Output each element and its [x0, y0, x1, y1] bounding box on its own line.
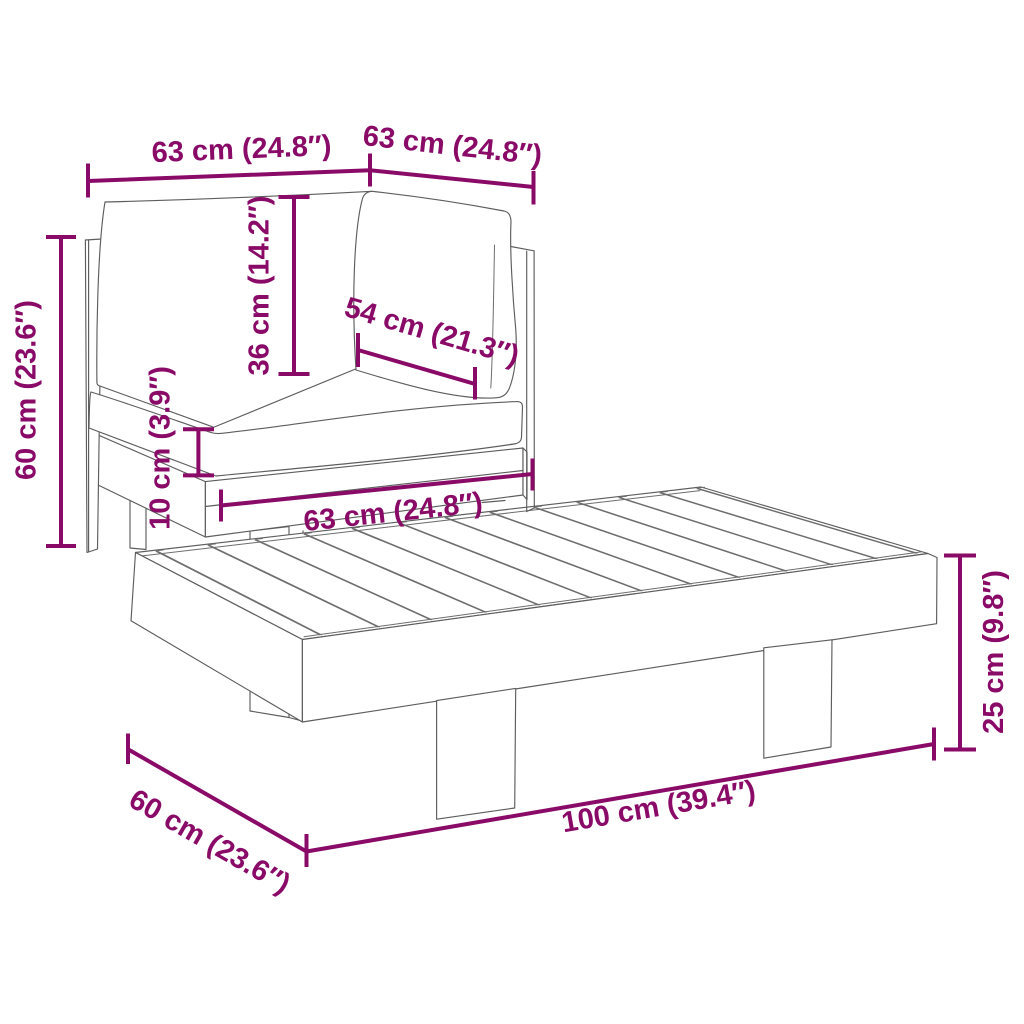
svg-text:10 cm (3.9″): 10 cm (3.9″)	[145, 366, 177, 530]
svg-text:25 cm (9.8″): 25 cm (9.8″)	[978, 570, 1010, 734]
svg-text:36 cm (14.2″): 36 cm (14.2″)	[244, 196, 276, 376]
svg-text:60 cm (23.6″): 60 cm (23.6″)	[11, 300, 43, 480]
